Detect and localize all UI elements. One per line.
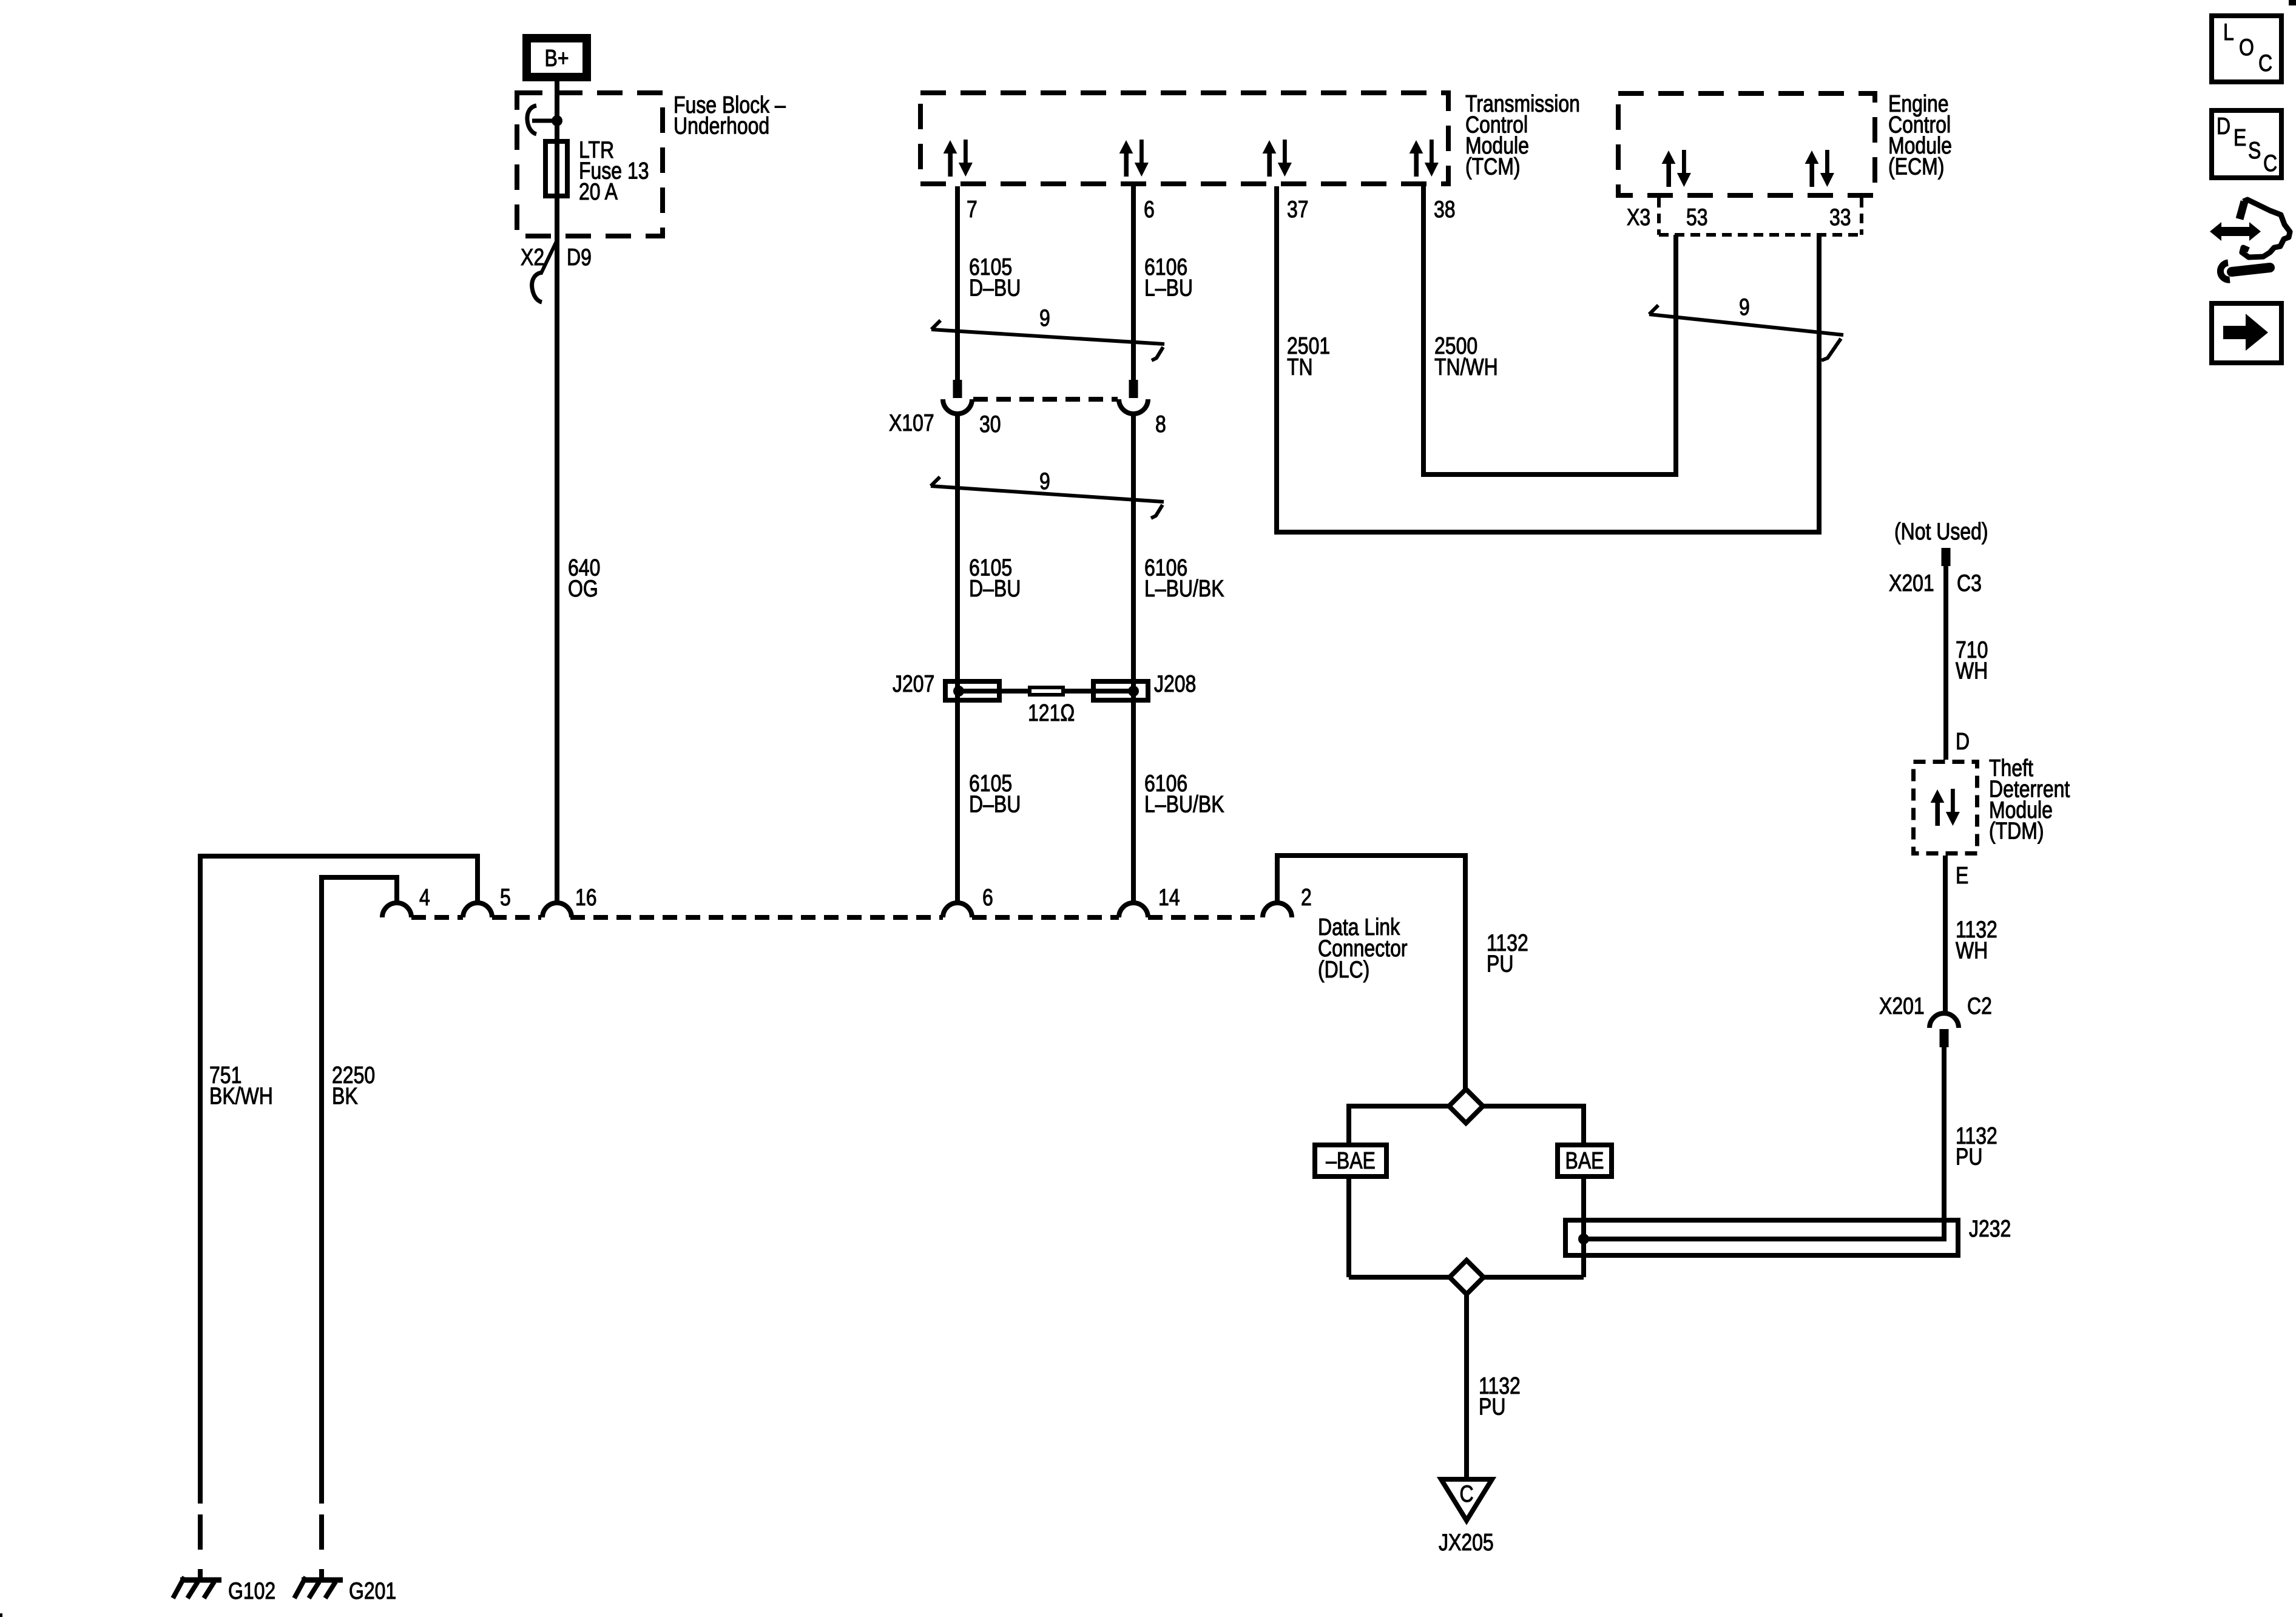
svg-text:(ECM): (ECM) <box>1888 154 1944 180</box>
svg-text:33: 33 <box>1829 204 1851 231</box>
svg-text:L–BU/BK: L–BU/BK <box>1144 791 1224 818</box>
svg-text:TN/WH: TN/WH <box>1434 354 1498 380</box>
svg-text:7: 7 <box>967 196 977 223</box>
svg-text:C: C <box>2258 50 2272 76</box>
svg-text:(TCM): (TCM) <box>1465 154 1521 180</box>
svg-text:J208: J208 <box>1154 670 1196 697</box>
svg-text:8: 8 <box>1155 411 1166 437</box>
svg-text:C: C <box>1459 1480 1473 1507</box>
svg-text:WH: WH <box>1956 937 1988 964</box>
svg-text:X2: X2 <box>521 244 544 271</box>
svg-text:9: 9 <box>1039 468 1050 495</box>
svg-text:6: 6 <box>982 884 993 911</box>
svg-text:J232: J232 <box>1969 1215 2011 1242</box>
svg-text:L: L <box>2223 19 2234 46</box>
svg-text:D: D <box>1956 728 1970 755</box>
svg-text:D–BU: D–BU <box>969 791 1021 818</box>
svg-text:9: 9 <box>1039 305 1050 331</box>
svg-text:D9: D9 <box>567 244 592 271</box>
svg-text:Underhood: Underhood <box>674 113 769 140</box>
svg-text:TN: TN <box>1287 354 1313 380</box>
svg-text:5: 5 <box>500 884 511 911</box>
svg-text:D–BU: D–BU <box>969 575 1021 602</box>
svg-text:37: 37 <box>1287 196 1309 223</box>
svg-text:9: 9 <box>1739 294 1750 320</box>
svg-text:BK/WH: BK/WH <box>209 1083 273 1110</box>
svg-text:WH: WH <box>1956 658 1988 684</box>
svg-text:E: E <box>1956 862 1968 889</box>
svg-text:J207: J207 <box>893 670 934 697</box>
svg-text:JX205: JX205 <box>1439 1529 1494 1556</box>
svg-text:X107: X107 <box>889 410 934 436</box>
svg-text:C2: C2 <box>1967 993 1992 1019</box>
svg-text:(DLC): (DLC) <box>1318 956 1369 983</box>
svg-text:L–BU/BK: L–BU/BK <box>1144 575 1224 602</box>
svg-text:O: O <box>2239 34 2254 61</box>
svg-text:38: 38 <box>1434 196 1456 223</box>
svg-text:PU: PU <box>1956 1144 1982 1170</box>
svg-text:D–BU: D–BU <box>969 275 1021 302</box>
svg-text:(TDM): (TDM) <box>1989 818 2044 845</box>
svg-text:14: 14 <box>1158 884 1180 911</box>
svg-text:4: 4 <box>419 884 430 911</box>
svg-text:30: 30 <box>979 411 1001 437</box>
svg-text:53: 53 <box>1686 204 1708 231</box>
svg-text:–BAE: –BAE <box>1326 1147 1376 1174</box>
svg-text:E: E <box>2234 124 2246 151</box>
svg-text:(Not Used): (Not Used) <box>1894 518 1988 545</box>
svg-text:X201: X201 <box>1879 993 1925 1019</box>
svg-text:BK: BK <box>332 1083 358 1110</box>
svg-text:G201: G201 <box>349 1578 396 1604</box>
svg-text:20 A: 20 A <box>579 178 618 205</box>
svg-text:C3: C3 <box>1957 570 1982 596</box>
svg-text:BAE: BAE <box>1565 1147 1604 1174</box>
svg-text:PU: PU <box>1487 951 1513 977</box>
svg-text:C: C <box>2263 150 2277 177</box>
svg-text:6: 6 <box>1144 196 1155 223</box>
svg-text:S: S <box>2248 137 2261 164</box>
svg-text:PU: PU <box>1479 1394 1505 1420</box>
svg-text:X3: X3 <box>1627 204 1650 231</box>
svg-text:B+: B+ <box>544 45 569 72</box>
svg-text:G102: G102 <box>228 1578 275 1604</box>
svg-text:16: 16 <box>575 884 597 911</box>
svg-text:D: D <box>2217 113 2230 140</box>
svg-text:121Ω: 121Ω <box>1028 700 1075 726</box>
svg-text:X201: X201 <box>1889 570 1934 596</box>
svg-text:2: 2 <box>1301 884 1312 911</box>
svg-text:L–BU: L–BU <box>1144 275 1193 302</box>
svg-text:OG: OG <box>568 575 598 602</box>
